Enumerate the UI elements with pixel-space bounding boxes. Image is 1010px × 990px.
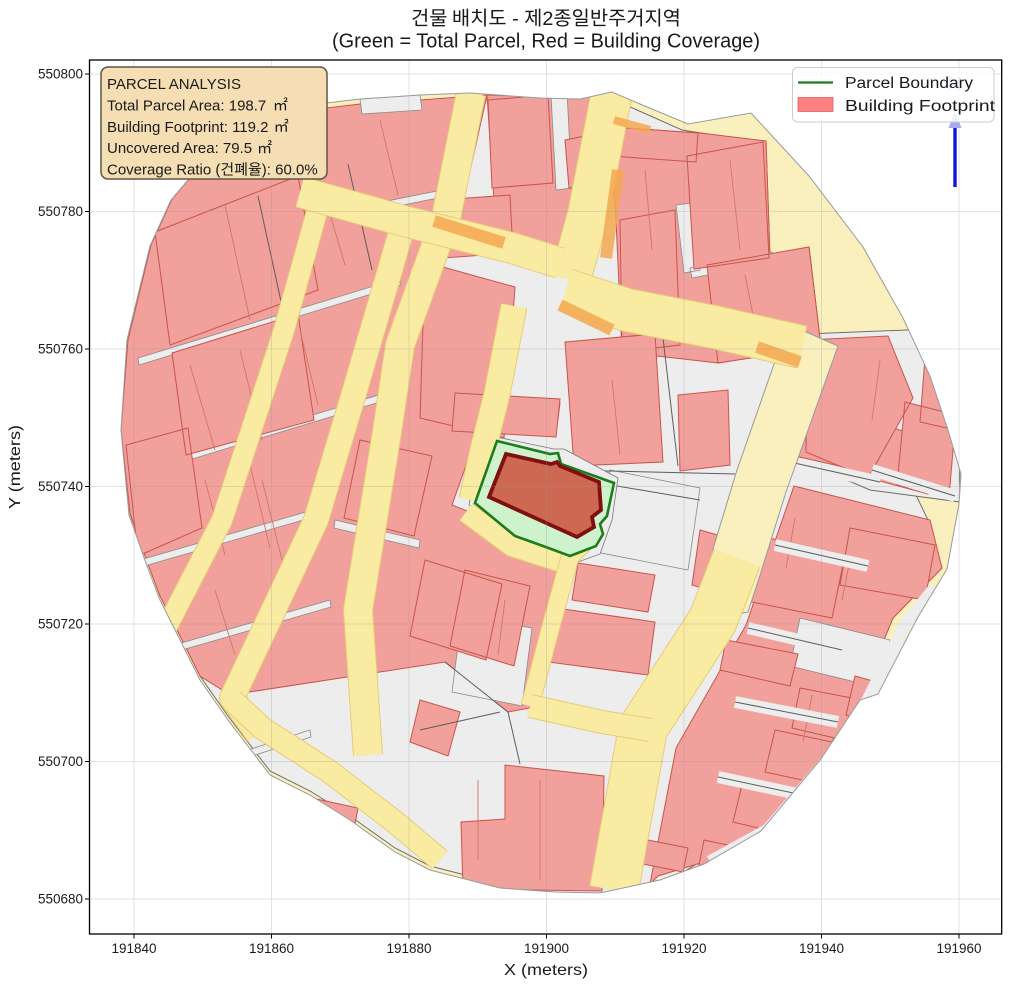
svg-text:550720: 550720: [38, 617, 83, 632]
svg-text:Y (meters): Y (meters): [7, 425, 24, 509]
svg-text:Uncovered Area: 79.5: Uncovered Area: 79.5: [107, 140, 256, 157]
svg-text:-: -: [507, 8, 525, 30]
svg-text:550680: 550680: [38, 892, 83, 907]
svg-text:Total Parcel Area: 198.7: Total Parcel Area: 198.7: [107, 97, 270, 114]
svg-text:191920: 191920: [661, 941, 706, 956]
svg-text:191840: 191840: [111, 941, 156, 956]
svg-text:Coverage Ratio (: Coverage Ratio (: [107, 162, 220, 179]
svg-text:191880: 191880: [386, 941, 431, 956]
svg-text:Building Footprint: 119.2: Building Footprint: 119.2: [107, 119, 273, 136]
svg-text:2: 2: [542, 8, 553, 30]
svg-text:550800: 550800: [38, 67, 83, 82]
svg-text:): 60.0%: ): 60.0%: [262, 162, 318, 179]
svg-text:550700: 550700: [38, 754, 83, 769]
svg-text:550760: 550760: [38, 342, 83, 357]
svg-text:(Green = Total Parcel, Red = B: (Green = Total Parcel, Red = Building Co…: [332, 30, 760, 53]
svg-text:191860: 191860: [249, 941, 294, 956]
svg-text:191960: 191960: [936, 941, 981, 956]
svg-text:X (meters): X (meters): [504, 962, 588, 979]
svg-text:191940: 191940: [799, 941, 844, 956]
svg-text:191900: 191900: [524, 941, 569, 956]
svg-text:550780: 550780: [38, 204, 83, 219]
svg-text:Parcel Boundary: Parcel Boundary: [845, 75, 973, 92]
svg-text:PARCEL ANALYSIS: PARCEL ANALYSIS: [107, 76, 241, 93]
svg-text:550740: 550740: [38, 479, 83, 494]
svg-text:Building Footprint: Building Footprint: [845, 98, 996, 115]
